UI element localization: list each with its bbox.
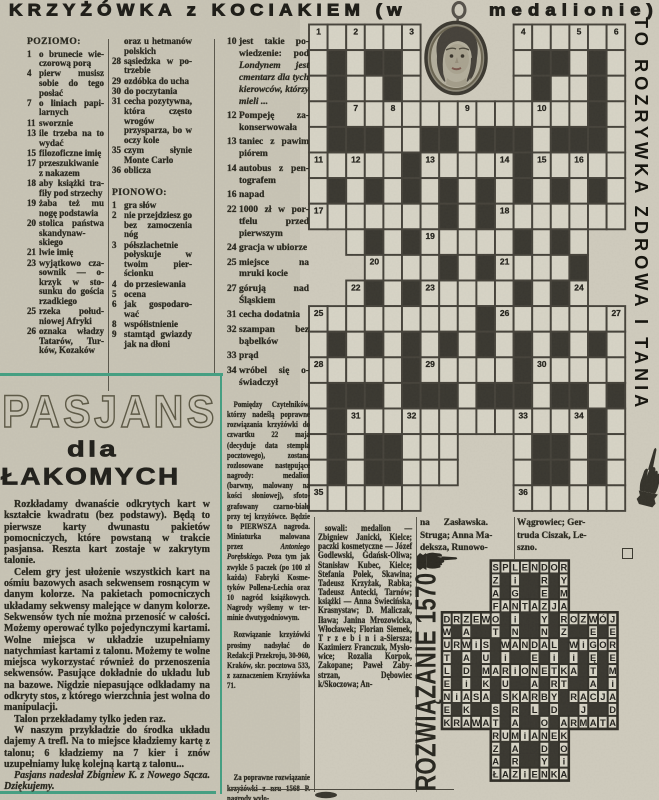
svg-text:N: N: [541, 769, 548, 780]
svg-text:Z: Z: [464, 613, 470, 624]
svg-text:Y: Y: [551, 691, 558, 702]
svg-text:W: W: [481, 613, 490, 624]
svg-text:O: O: [599, 639, 606, 650]
svg-text:R: R: [512, 756, 519, 767]
svg-text:R: R: [512, 704, 519, 715]
svg-text:i: i: [455, 691, 458, 702]
svg-text:S: S: [502, 691, 508, 702]
svg-text:A: A: [609, 691, 616, 702]
svg-text:A: A: [521, 691, 528, 702]
svg-text:Z: Z: [581, 613, 587, 624]
svg-text:D: D: [609, 704, 616, 715]
svg-text:L: L: [532, 704, 538, 715]
svg-text:J: J: [552, 600, 557, 611]
svg-text:i: i: [475, 639, 478, 650]
svg-text:R: R: [502, 665, 509, 676]
svg-text:U: U: [502, 678, 509, 689]
svg-text:K: K: [560, 730, 567, 741]
svg-text:A: A: [463, 717, 470, 728]
svg-text:Z: Z: [493, 743, 499, 754]
svg-text:A: A: [482, 691, 489, 702]
svg-text:Z: Z: [561, 626, 567, 637]
svg-text:A: A: [531, 730, 538, 741]
svg-text:E: E: [551, 730, 557, 741]
svg-text:D: D: [541, 561, 548, 572]
svg-text:B: B: [541, 691, 548, 702]
svg-text:D: D: [443, 613, 450, 624]
svg-text:M: M: [560, 587, 568, 598]
svg-text:K: K: [560, 665, 567, 676]
svg-text:O: O: [521, 665, 528, 676]
svg-text:U: U: [482, 652, 489, 663]
svg-text:R: R: [453, 639, 460, 650]
svg-text:M: M: [511, 730, 519, 741]
svg-text:S: S: [492, 561, 498, 572]
svg-text:K: K: [482, 678, 489, 689]
svg-text:E: E: [609, 626, 615, 637]
svg-text:U: U: [443, 639, 450, 650]
svg-text:K: K: [443, 717, 450, 728]
svg-text:L: L: [551, 639, 557, 650]
svg-text:i: i: [465, 678, 468, 689]
svg-text:i: i: [524, 730, 527, 741]
svg-text:A: A: [512, 717, 519, 728]
svg-text:E: E: [541, 587, 547, 598]
svg-text:M: M: [482, 665, 490, 676]
svg-text:M: M: [579, 717, 587, 728]
svg-text:A: A: [560, 769, 567, 780]
svg-text:K: K: [551, 769, 558, 780]
svg-text:E: E: [522, 561, 528, 572]
svg-text:R: R: [570, 691, 577, 702]
svg-text:S: S: [483, 639, 489, 650]
svg-text:W: W: [589, 613, 598, 624]
svg-text:Z: Z: [512, 769, 518, 780]
svg-text:Ę: Ę: [590, 652, 596, 663]
svg-text:O: O: [492, 613, 499, 624]
svg-text:A: A: [502, 769, 509, 780]
svg-text:Y: Y: [541, 613, 548, 624]
svg-text:N: N: [512, 600, 519, 611]
svg-text:E: E: [609, 652, 615, 663]
svg-text:W: W: [501, 639, 510, 650]
svg-text:T: T: [590, 665, 596, 676]
svg-text:N: N: [531, 665, 538, 676]
svg-text:Y: Y: [561, 574, 568, 585]
svg-text:R: R: [570, 717, 577, 728]
svg-text:A: A: [570, 665, 577, 676]
svg-text:E: E: [590, 626, 596, 637]
svg-text:A: A: [531, 600, 538, 611]
svg-text:T: T: [561, 678, 567, 689]
svg-text:i: i: [514, 613, 517, 624]
svg-text:Y: Y: [541, 756, 548, 767]
svg-text:E: E: [531, 769, 537, 780]
svg-text:K: K: [512, 691, 519, 702]
svg-text:D: D: [463, 665, 470, 676]
svg-text:T: T: [551, 665, 557, 676]
svg-text:i: i: [563, 756, 566, 767]
svg-text:A: A: [531, 678, 538, 689]
svg-text:W: W: [462, 639, 471, 650]
svg-text:A: A: [541, 639, 548, 650]
svg-text:Ó: Ó: [599, 613, 606, 624]
svg-text:E: E: [473, 613, 479, 624]
svg-text:U: U: [502, 730, 509, 741]
svg-text:E: E: [541, 665, 547, 676]
svg-text:W: W: [442, 626, 451, 637]
svg-text:A: A: [609, 717, 616, 728]
svg-text:L: L: [444, 665, 450, 676]
svg-text:A: A: [512, 743, 519, 754]
svg-text:R: R: [453, 717, 460, 728]
svg-text:A: A: [502, 600, 509, 611]
svg-text:M: M: [609, 665, 617, 676]
svg-text:T: T: [522, 600, 528, 611]
svg-text:i: i: [582, 639, 585, 650]
svg-text:O: O: [550, 561, 557, 572]
svg-text:D: D: [551, 704, 558, 715]
svg-text:P: P: [502, 561, 508, 572]
svg-text:R: R: [531, 691, 538, 702]
svg-text:T: T: [493, 626, 499, 637]
svg-text:A: A: [560, 717, 567, 728]
svg-text:C: C: [590, 691, 597, 702]
svg-text:R: R: [453, 613, 460, 624]
svg-text:O: O: [570, 613, 577, 624]
svg-text:N: N: [443, 691, 450, 702]
svg-text:A: A: [482, 717, 489, 728]
svg-text:R: R: [492, 730, 499, 741]
svg-text:i: i: [524, 769, 527, 780]
svg-text:A: A: [492, 756, 499, 767]
svg-text:N: N: [531, 561, 538, 572]
svg-text:R: R: [560, 613, 567, 624]
svg-text:T: T: [493, 717, 499, 728]
svg-text:R: R: [551, 678, 558, 689]
svg-text:T: T: [600, 717, 606, 728]
svg-text:A: A: [560, 600, 567, 611]
svg-text:E: E: [531, 652, 537, 663]
svg-text:F: F: [493, 600, 499, 611]
svg-text:O: O: [541, 717, 548, 728]
svg-text:A: A: [492, 665, 499, 676]
svg-text:J: J: [581, 704, 586, 715]
svg-text:i: i: [553, 652, 556, 663]
svg-text:R: R: [560, 561, 567, 572]
svg-text:K: K: [463, 704, 470, 715]
svg-text:i: i: [514, 574, 517, 585]
svg-text:i: i: [572, 652, 575, 663]
svg-text:A: A: [580, 691, 587, 702]
svg-text:J: J: [600, 691, 605, 702]
svg-text:S: S: [473, 691, 479, 702]
svg-text:G: G: [589, 639, 596, 650]
svg-text:A: A: [463, 691, 470, 702]
svg-text:W: W: [472, 717, 481, 728]
svg-text:W: W: [569, 639, 578, 650]
svg-text:R: R: [541, 574, 548, 585]
svg-text:Ł: Ł: [493, 769, 499, 780]
svg-text:Z: Z: [542, 600, 548, 611]
svg-text:D: D: [541, 743, 548, 754]
svg-text:N: N: [521, 639, 528, 650]
svg-text:N: N: [541, 730, 548, 741]
svg-text:i: i: [514, 665, 517, 676]
svg-text:R: R: [609, 639, 616, 650]
svg-text:A: A: [512, 639, 519, 650]
svg-text:A: A: [590, 717, 597, 728]
svg-text:S: S: [492, 704, 498, 715]
svg-text:A: A: [590, 678, 597, 689]
svg-text:E: E: [444, 678, 450, 689]
svg-text:Z: Z: [493, 574, 499, 585]
svg-text:D: D: [531, 639, 538, 650]
svg-text:A: A: [463, 652, 470, 663]
svg-text:A: A: [492, 587, 499, 598]
svg-text:O: O: [560, 743, 567, 754]
svg-text:T: T: [444, 652, 450, 663]
svg-text:G: G: [511, 587, 518, 598]
svg-text:N: N: [541, 626, 548, 637]
svg-text:L: L: [512, 561, 518, 572]
svg-text:A: A: [463, 626, 470, 637]
svg-text:N: N: [512, 626, 519, 637]
svg-text:i: i: [611, 678, 614, 689]
svg-text:J: J: [610, 613, 615, 624]
svg-text:i: i: [504, 652, 507, 663]
svg-text:E: E: [444, 704, 450, 715]
